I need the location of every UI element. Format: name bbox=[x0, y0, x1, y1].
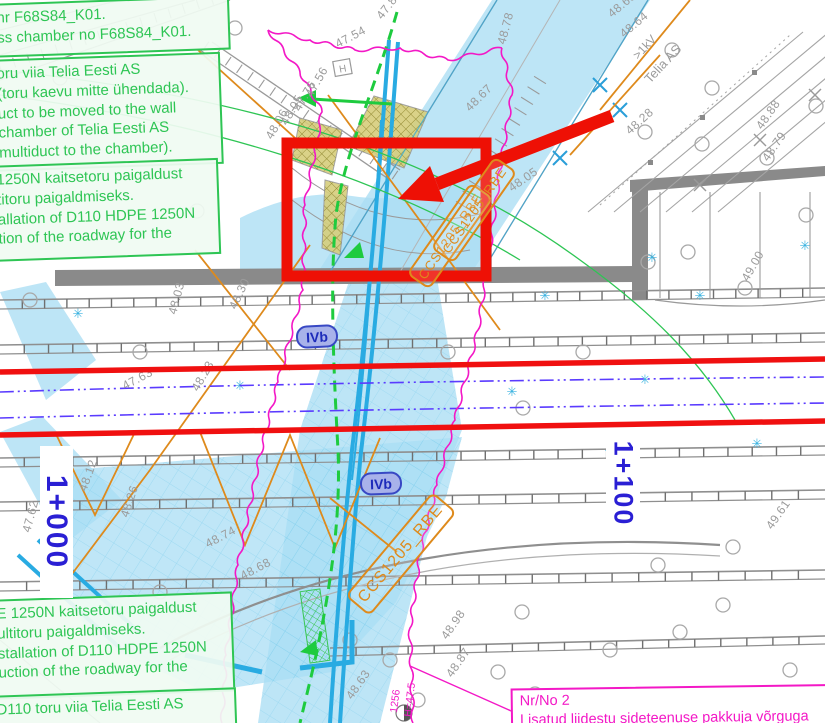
star-symbol: ✳ bbox=[73, 306, 84, 321]
elevation-label: 47.87 bbox=[373, 0, 404, 22]
star-symbol: ✳ bbox=[647, 250, 658, 265]
star-symbol: ✳ bbox=[752, 436, 763, 451]
road-class-badge: IVb bbox=[360, 471, 403, 495]
elevation-label: 47.62 bbox=[19, 499, 41, 534]
elevation-label: 48.87 bbox=[443, 645, 473, 680]
hatch-tick bbox=[237, 65, 243, 73]
star-symbol: ✳ bbox=[540, 288, 551, 303]
tree-circle bbox=[651, 558, 665, 572]
tree-circle bbox=[726, 540, 740, 554]
elevation-label: 48.88 bbox=[753, 97, 783, 132]
hatch-tick bbox=[270, 87, 276, 95]
star-symbol: ✳ bbox=[800, 238, 811, 253]
tree-circle bbox=[716, 598, 730, 612]
fence-wall bbox=[630, 166, 825, 192]
note-box-4: E 1250N kaitsetoru paigaldust ultitoru p… bbox=[0, 591, 235, 700]
star-symbol: ✳ bbox=[695, 288, 706, 303]
tree-circle bbox=[799, 208, 813, 222]
road-class-badge: IVb bbox=[295, 324, 338, 349]
hatch-tick bbox=[225, 57, 231, 65]
note-box-3: 1250N kaitsetoru paigaldust titoru paiga… bbox=[0, 158, 221, 262]
note-box-1: hr F68S84_K01. ss chamber no F68S84_K01. bbox=[0, 0, 231, 58]
pole-symbol bbox=[752, 70, 757, 75]
pole-symbol bbox=[700, 115, 705, 120]
chainage-label-1100: 1+100 bbox=[606, 430, 640, 536]
tree-circle bbox=[576, 345, 590, 359]
fence-post bbox=[632, 188, 648, 300]
hatch-tick bbox=[281, 95, 287, 103]
power-line-label: >1kV bbox=[630, 32, 659, 62]
chainage-label-1000: 1+000 bbox=[40, 446, 73, 598]
tree-circle bbox=[603, 643, 617, 657]
elevation-label: 48.03 bbox=[165, 281, 187, 316]
pole-symbol bbox=[648, 160, 653, 165]
tree-circle bbox=[695, 137, 709, 151]
hydrant-letter: H bbox=[338, 63, 347, 75]
elevation-label: 49.61 bbox=[763, 497, 793, 532]
hatch-tick bbox=[303, 110, 309, 118]
hatch-tick bbox=[248, 72, 254, 80]
hatch-tick bbox=[259, 80, 265, 88]
elevation-label: 49.00 bbox=[738, 248, 766, 283]
fence-curve bbox=[655, 300, 825, 306]
tree-circle bbox=[491, 665, 505, 679]
star-symbol: ✳ bbox=[507, 384, 518, 399]
tree-circle bbox=[809, 99, 823, 113]
note-box-2: oru viia Telia Eesti AS (toru kaevu mitt… bbox=[0, 52, 224, 172]
revision-note-box: Nr/No 2 Lisatud liidestu sideteenuse pak… bbox=[511, 683, 825, 723]
tree-circle bbox=[705, 81, 719, 95]
tree-circle bbox=[681, 245, 695, 259]
elevation-label: 48.23 bbox=[188, 358, 216, 393]
elevation-label: 48.79 bbox=[759, 129, 789, 164]
tree-circle bbox=[515, 605, 529, 619]
cad-site-plan: H ✳✳✳✳✳✳✳✳✳✳ 47.8748.6548.6448.7848.6748… bbox=[0, 0, 825, 723]
elevation-label: 48.28 bbox=[623, 105, 657, 137]
tree-circle bbox=[783, 663, 797, 677]
tree-circle bbox=[673, 625, 687, 639]
elevation-label: 48.98 bbox=[438, 607, 468, 642]
note-line: D110 toru viia Telia Eesti AS bbox=[0, 693, 229, 721]
revision-leader bbox=[410, 666, 518, 714]
